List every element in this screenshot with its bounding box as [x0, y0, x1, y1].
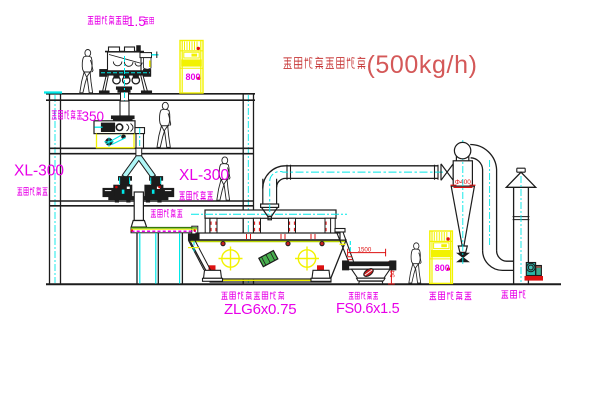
svg-text:XL-300: XL-300 [179, 167, 229, 184]
svg-text:(500kg/h): (500kg/h) [367, 51, 478, 79]
svg-text:XL-300: XL-300 [14, 163, 64, 180]
svg-text:350: 350 [82, 109, 105, 124]
svg-text:1500: 1500 [358, 247, 372, 254]
svg-text:ZLG6x0.75: ZLG6x0.75 [224, 301, 296, 318]
svg-text:1.5: 1.5 [127, 14, 146, 29]
svg-text:FS0.6x1.5: FS0.6x1.5 [336, 301, 400, 317]
svg-text:800: 800 [186, 72, 201, 82]
svg-text:800: 800 [435, 263, 450, 273]
